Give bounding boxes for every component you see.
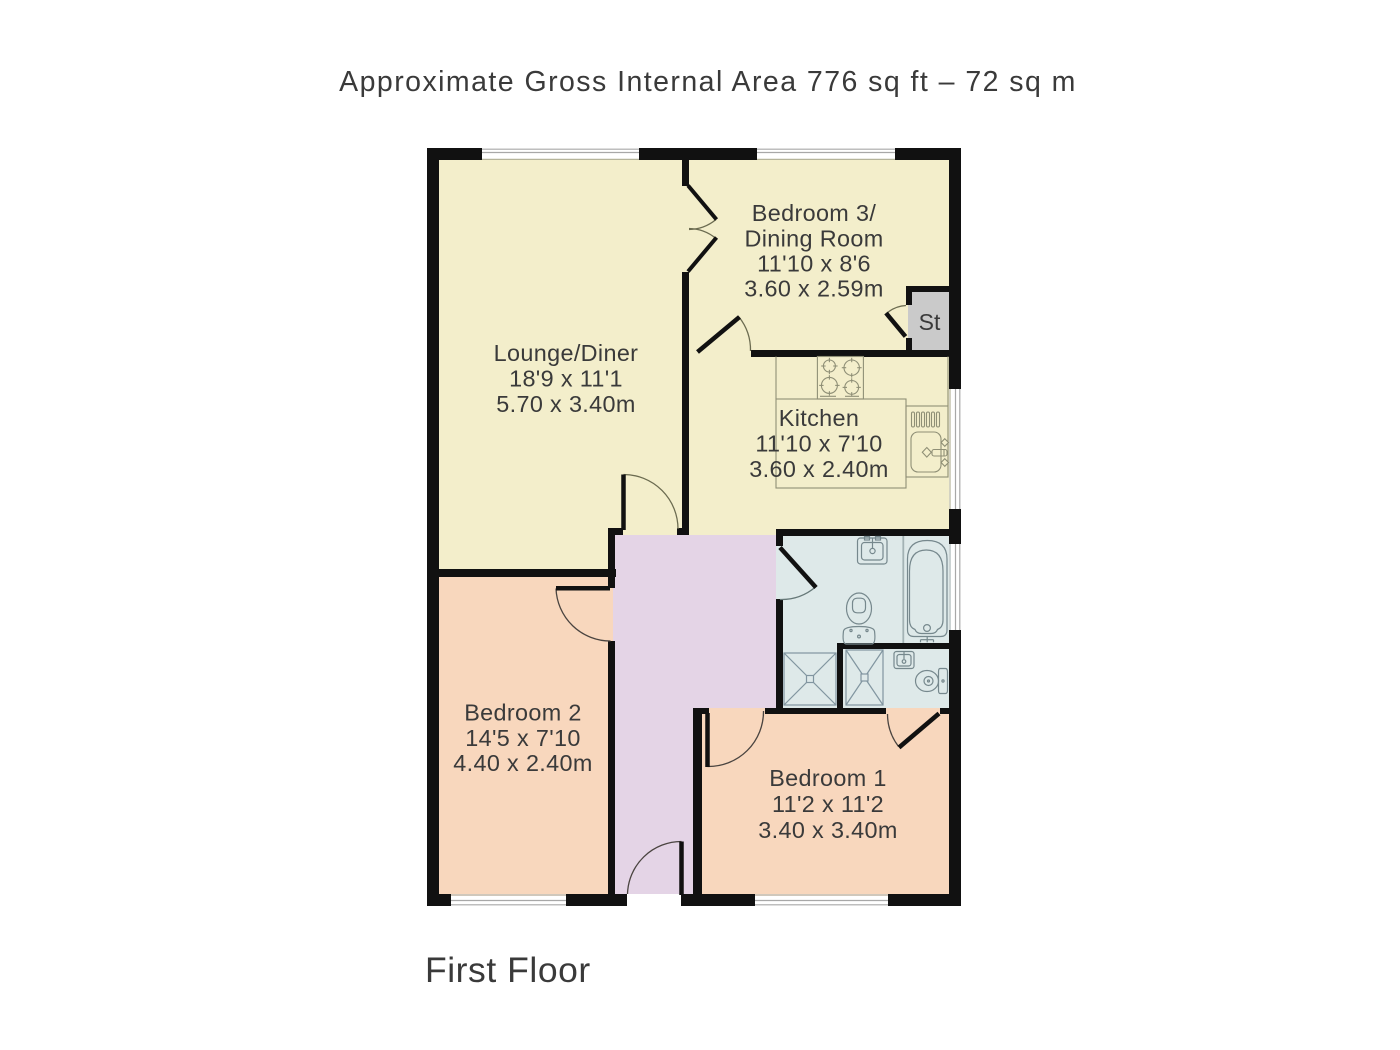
svg-text:3.40 x 3.40m: 3.40 x 3.40m — [758, 817, 897, 843]
svg-text:Bedroom 3/: Bedroom 3/ — [752, 200, 877, 226]
svg-text:14'5 x 7'10: 14'5 x 7'10 — [465, 725, 581, 751]
svg-text:11'10 x 7'10: 11'10 x 7'10 — [755, 431, 882, 457]
svg-text:Bedroom 2: Bedroom 2 — [464, 700, 582, 726]
svg-text:3.60 x 2.40m: 3.60 x 2.40m — [749, 456, 888, 482]
svg-text:Lounge/Diner: Lounge/Diner — [494, 340, 639, 366]
svg-text:11'10 x 8'6: 11'10 x 8'6 — [757, 251, 871, 277]
svg-text:3.60 x 2.59m: 3.60 x 2.59m — [744, 276, 883, 302]
svg-text:Approximate Gross Internal Are: Approximate Gross Internal Area 776 sq f… — [339, 66, 1077, 98]
svg-text:4.40 x 2.40m: 4.40 x 2.40m — [453, 750, 592, 776]
svg-text:St: St — [919, 309, 941, 335]
svg-text:Dining Room: Dining Room — [744, 226, 883, 252]
svg-text:First Floor: First Floor — [425, 950, 591, 990]
svg-text:18'9 x 11'1: 18'9 x 11'1 — [509, 366, 623, 392]
svg-text:Bedroom 1: Bedroom 1 — [769, 765, 887, 791]
svg-text:5.70 x 3.40m: 5.70 x 3.40m — [496, 391, 635, 417]
svg-text:11'2 x 11'2: 11'2 x 11'2 — [772, 791, 884, 817]
svg-text:Kitchen: Kitchen — [779, 405, 859, 431]
